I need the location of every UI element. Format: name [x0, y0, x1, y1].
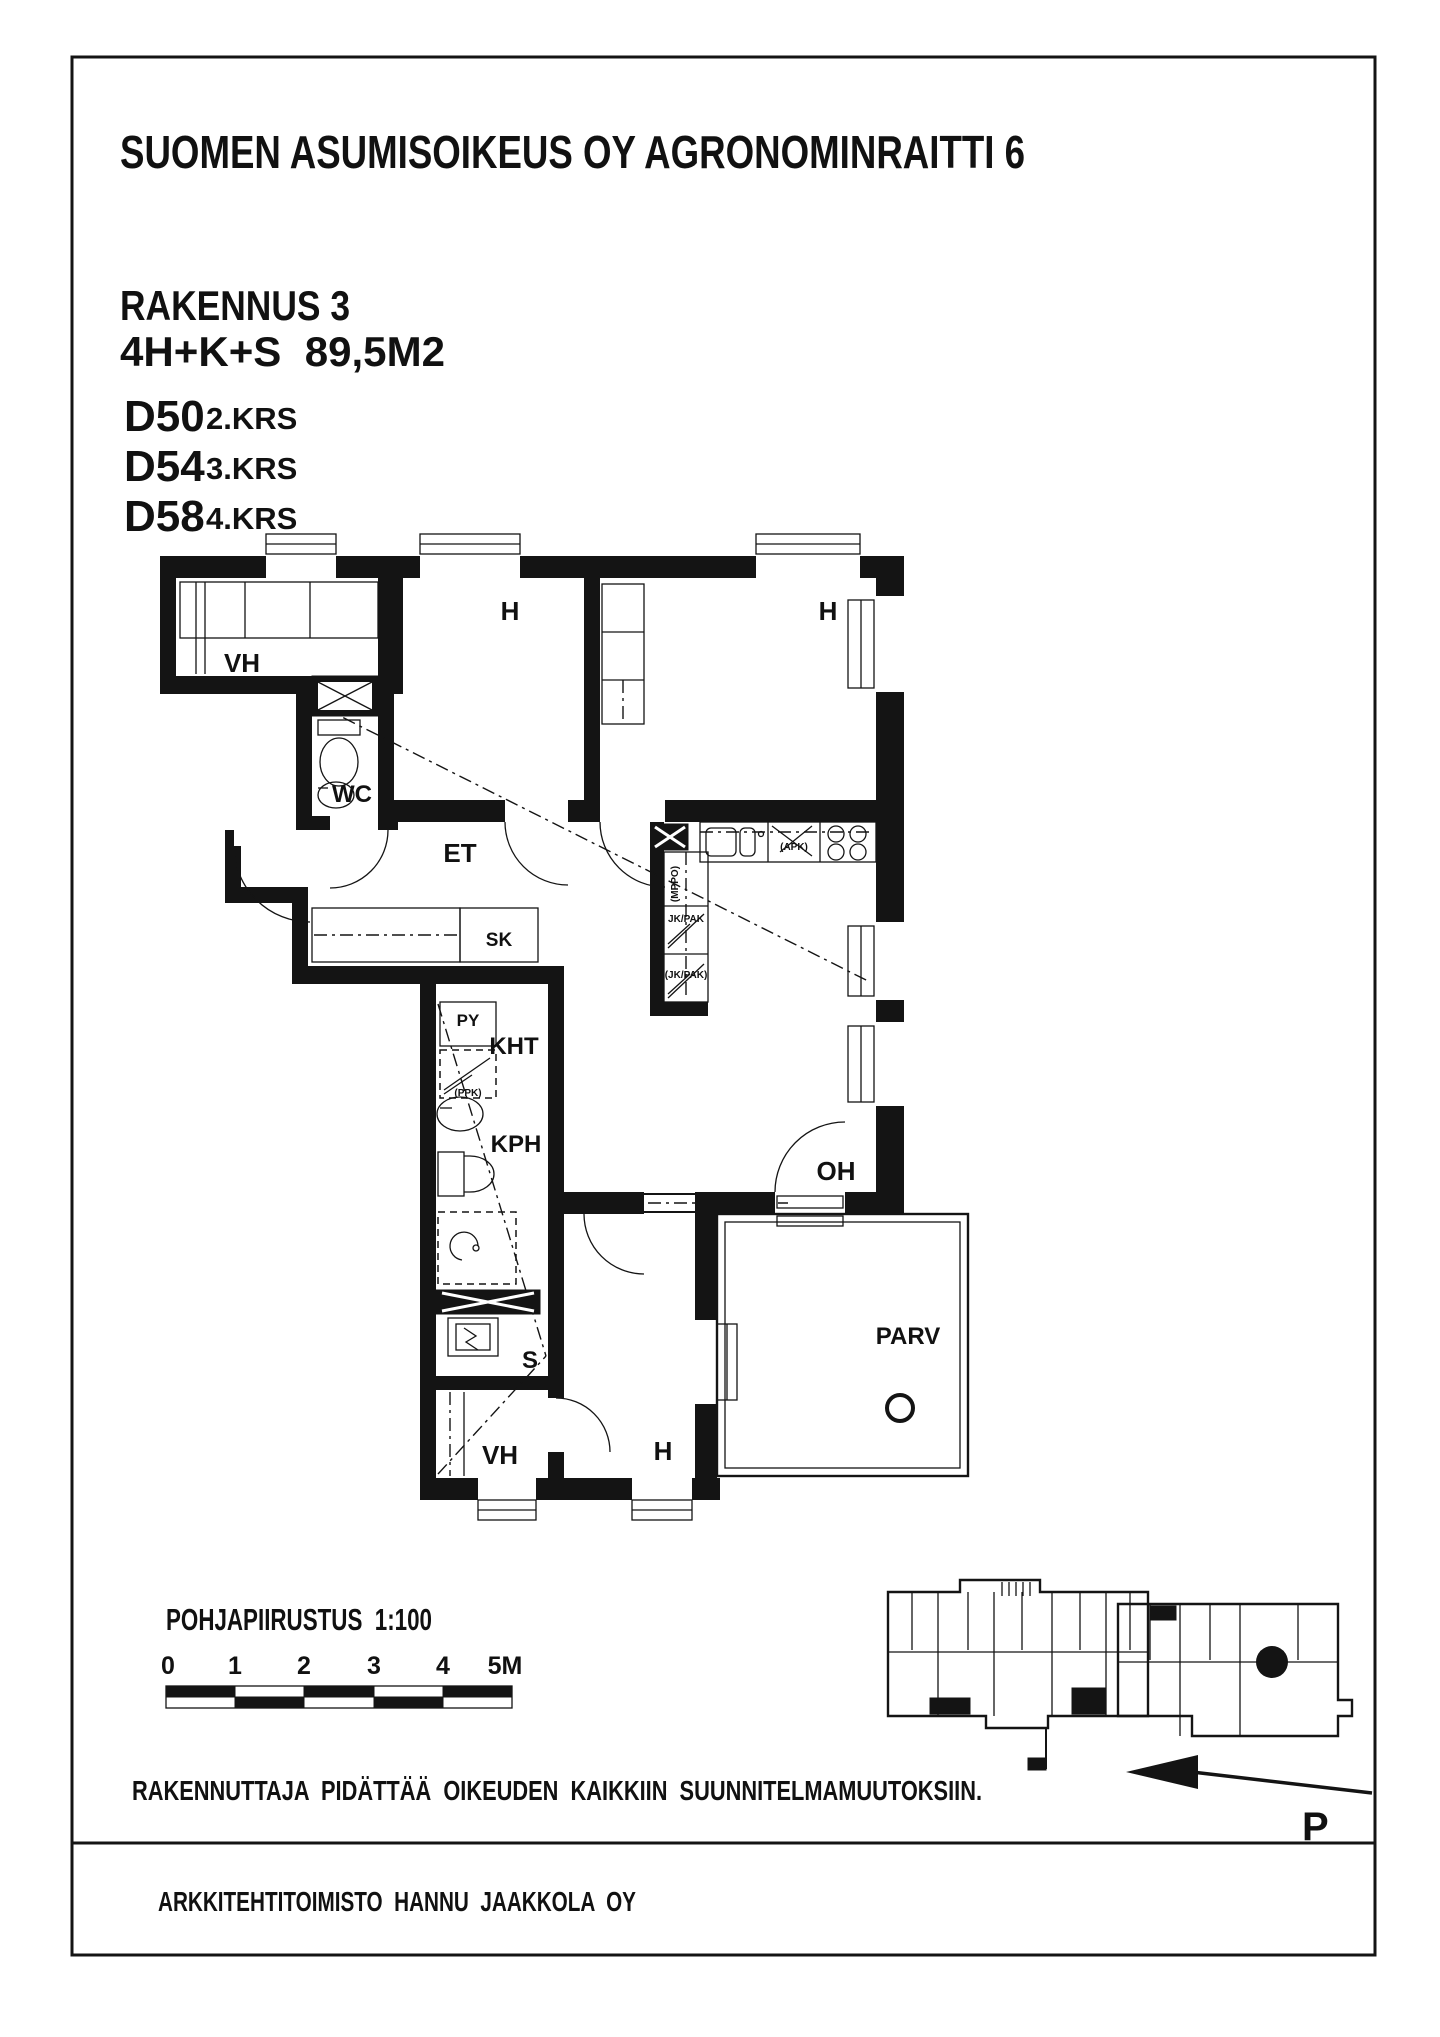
wall [548, 1192, 644, 1214]
wall [394, 800, 505, 822]
window [478, 1478, 536, 1500]
room-label-sk: SK [486, 930, 513, 951]
drawing-sheet: SUOMEN ASUMISOIKEUS OY AGRONOMINRAITTI 6… [0, 0, 1440, 2037]
window [632, 1478, 692, 1500]
scale-tick: 1 [228, 1652, 242, 1680]
label-mppo: (MPPO) [670, 866, 681, 902]
wall [548, 1452, 564, 1478]
utility-column [436, 1002, 540, 1476]
room-label-oh: OH [817, 1156, 856, 1186]
wall [160, 556, 176, 694]
balcony-drain-icon [887, 1395, 913, 1421]
scale-ticks: 0 1 2 3 4 5M [161, 1652, 522, 1680]
building-label: RAKENNUS 3 [120, 282, 350, 329]
room-labels: VH H H WC ET SK PY KHT KPH S VH H OH PAR… [224, 596, 940, 1470]
north-arrow-icon [1126, 1755, 1198, 1789]
room-label-vh2: VH [482, 1440, 518, 1470]
toilet-icon [438, 1152, 464, 1196]
page-title: SUOMEN ASUMISOIKEUS OY AGRONOMINRAITTI 6 [120, 126, 1025, 178]
unit-id: D54 [124, 442, 205, 491]
keyplan-solid-block [1072, 1688, 1106, 1714]
drawing-canvas: SUOMEN ASUMISOIKEUS OY AGRONOMINRAITTI 6… [0, 0, 1440, 2037]
unit-floor: 3.KRS [206, 451, 297, 486]
label-ppk: (PPK) [454, 1088, 481, 1099]
keyplan-solid-block [930, 1698, 970, 1714]
keyplan-building-outline [1118, 1604, 1352, 1736]
wall [378, 694, 394, 830]
drawing-type-label: POHJAPIIRUSTUS 1:100 [166, 1602, 432, 1637]
wall [296, 676, 312, 830]
architect-name: ARKKITEHTITOIMISTO HANNU JAAKKOLA OY [158, 1886, 636, 1917]
sauna-heater-icon [464, 1328, 478, 1350]
room-label-s: S [522, 1347, 538, 1374]
scale-bar [166, 1686, 512, 1708]
unit-id: D58 [124, 492, 205, 541]
north-arrow: P [1126, 1755, 1372, 1849]
room-label-vh: VH [224, 648, 260, 678]
toilet-icon [464, 1156, 494, 1192]
scale-tick: 4 [436, 1652, 450, 1680]
wall [692, 1478, 720, 1500]
closet-h2 [602, 584, 644, 724]
keyplan-solid-block [1028, 1758, 1046, 1770]
room-label-kph: KPH [491, 1131, 542, 1158]
bedroom1-door-arc [505, 822, 568, 885]
closet-door-arc [556, 1398, 610, 1452]
scale-tick: 3 [367, 1652, 381, 1680]
toilet-icon [320, 738, 358, 786]
room-label-kht: KHT [489, 1033, 539, 1060]
wall [695, 1404, 717, 1478]
scale-bar-segment [304, 1686, 374, 1697]
wall [568, 800, 600, 822]
wall [665, 800, 876, 822]
scale-tick: 2 [297, 1652, 311, 1680]
site-key-plan [888, 1580, 1352, 1770]
wall [650, 1002, 708, 1016]
room-label-parv: PARV [876, 1323, 940, 1350]
window [756, 556, 860, 578]
scale-tick: 5M [488, 1652, 523, 1680]
stove-burner-icon [850, 826, 866, 842]
wall [845, 1192, 904, 1214]
apartment-location-marker [1256, 1646, 1288, 1678]
stove-burner-icon [850, 844, 866, 860]
label-jkpak2: (JK/PAK) [665, 970, 708, 981]
label-jkpak: JK/PAK [668, 914, 705, 925]
balcony-door-step [777, 1216, 843, 1226]
wall [225, 830, 234, 846]
apartment-type: 4H+K+S 89,5M2 [120, 328, 445, 375]
scale-bar-segment [374, 1697, 443, 1708]
wall [536, 1478, 632, 1500]
north-label: P [1302, 1805, 1329, 1849]
wall [420, 966, 436, 1478]
stove-burner-icon [828, 844, 844, 860]
north-arrow-icon [1192, 1772, 1372, 1793]
unit-id: D50 [124, 392, 205, 441]
floor-plan: VH H H WC ET SK PY KHT KPH S VH H OH PAR… [160, 534, 968, 1520]
scale-bar-segment [443, 1686, 512, 1697]
keyplan-stair-hatch [1002, 1582, 1030, 1596]
balcony-door-threshold [777, 1196, 843, 1208]
scale-bar-segment [166, 1686, 235, 1697]
keyplan-building-outline [888, 1580, 1148, 1728]
disclaimer-text: RAKENNUTTAJA PIDÄTTÄÄ OIKEUDEN KAIKKIIN … [132, 1775, 982, 1806]
unit-floor: 4.KRS [206, 501, 297, 536]
window [266, 556, 336, 578]
unit-floor: 2.KRS [206, 401, 297, 436]
room-label-h1: H [501, 596, 520, 626]
window [876, 922, 904, 1000]
sink-icon [437, 1097, 483, 1131]
wall [695, 1214, 717, 1320]
wall [548, 966, 564, 1398]
wall [420, 1478, 478, 1500]
closet-top [180, 582, 378, 674]
keyplan-solid-block [1150, 1606, 1176, 1620]
room-label-py: PY [457, 1011, 480, 1030]
room-label-h2: H [819, 596, 838, 626]
wall [296, 816, 330, 830]
wc-door-arc [330, 830, 388, 888]
room-label-h3: H [654, 1436, 673, 1466]
closet-outline [602, 584, 644, 724]
wall [420, 1376, 564, 1390]
window [420, 556, 520, 578]
scale-tick: 0 [161, 1652, 175, 1680]
stove-burner-icon [828, 826, 844, 842]
window [876, 1022, 904, 1106]
label-apk: (APK) [780, 842, 808, 853]
wall [160, 676, 312, 694]
scale-block: POHJAPIIRUSTUS 1:100 0 1 2 3 4 5M [161, 1602, 522, 1708]
closet-outline [180, 582, 378, 638]
bedroom3-door-arc [584, 1214, 644, 1274]
window [876, 596, 904, 692]
wall [584, 578, 600, 822]
room-label-et: ET [443, 838, 476, 868]
wall [378, 578, 403, 694]
unit-list: D50 2.KRS D54 3.KRS D58 4.KRS [124, 392, 297, 541]
room-label-wc: WC [332, 781, 372, 808]
scale-bar-segment [235, 1697, 304, 1708]
window [695, 1320, 717, 1404]
